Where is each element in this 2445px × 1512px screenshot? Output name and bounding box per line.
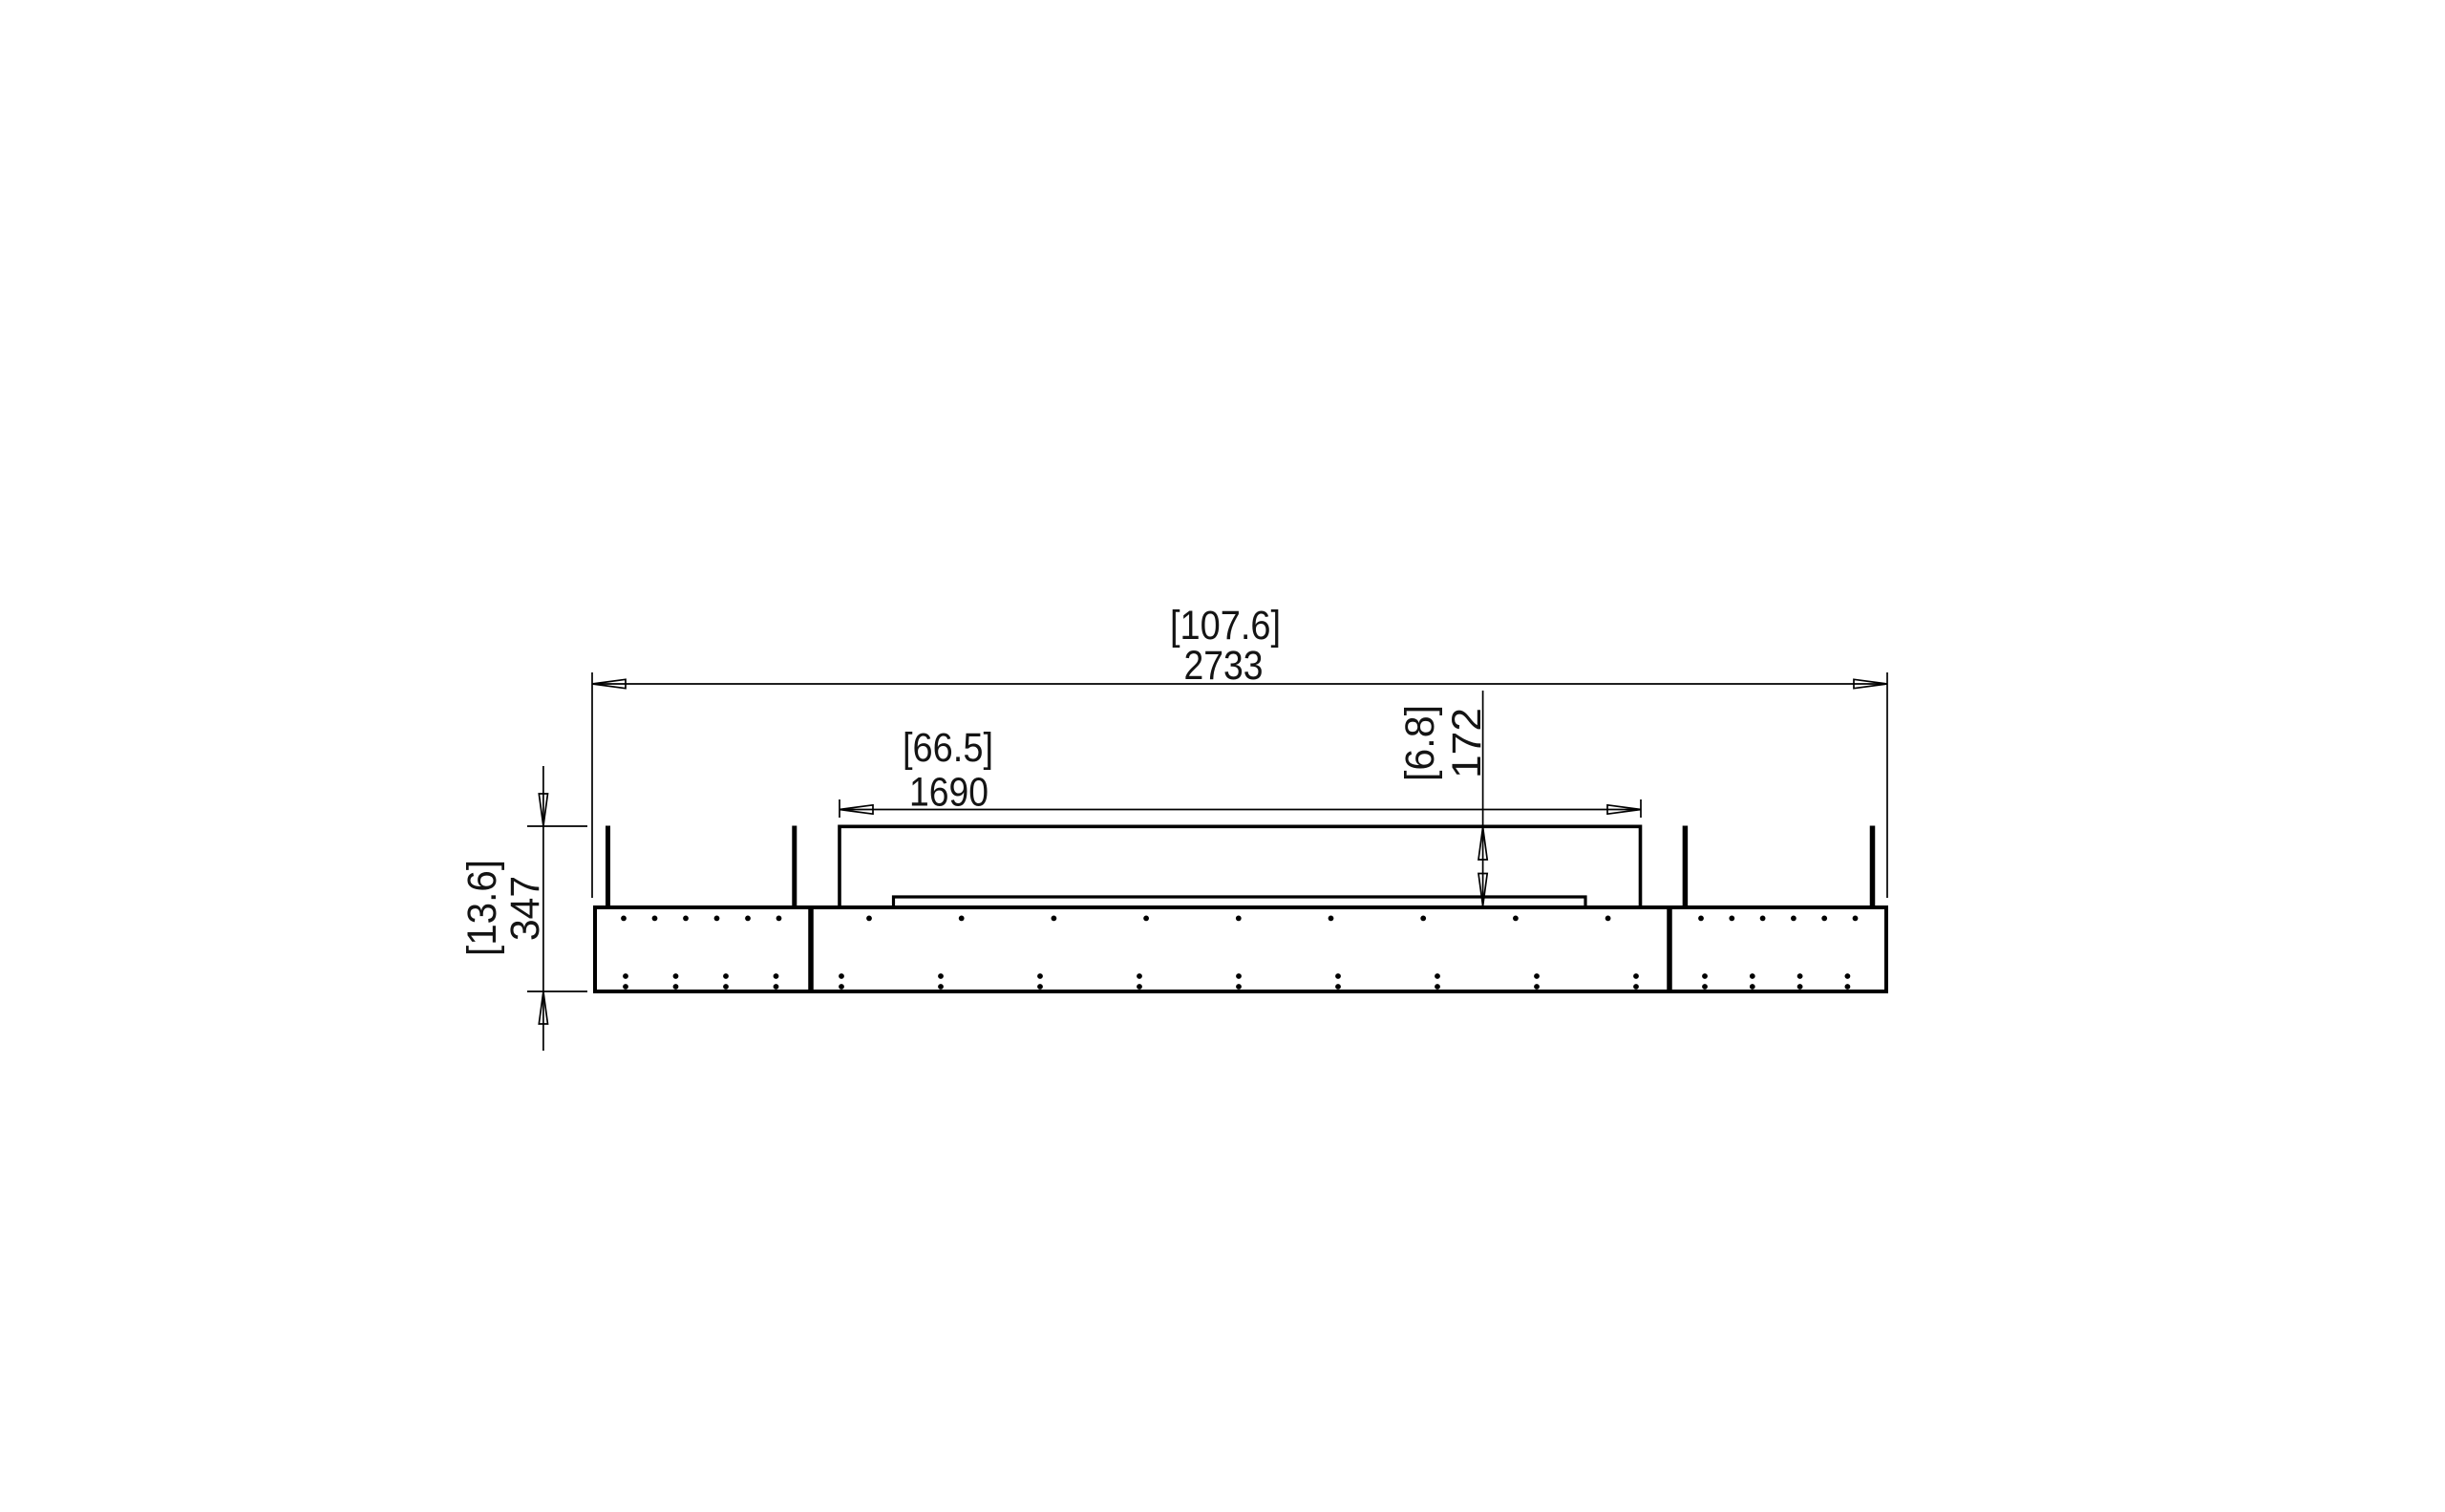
svg-text:[66.5]: [66.5]	[903, 725, 993, 771]
svg-text:347: 347	[502, 876, 548, 941]
svg-text:[6.8]: [6.8]	[1397, 705, 1443, 781]
svg-text:2733: 2733	[1184, 643, 1264, 689]
svg-text:172: 172	[1444, 708, 1490, 778]
svg-text:[107.6]: [107.6]	[1170, 603, 1281, 649]
svg-text:[13.6]: [13.6]	[459, 860, 505, 956]
svg-text:1690: 1690	[909, 770, 989, 816]
